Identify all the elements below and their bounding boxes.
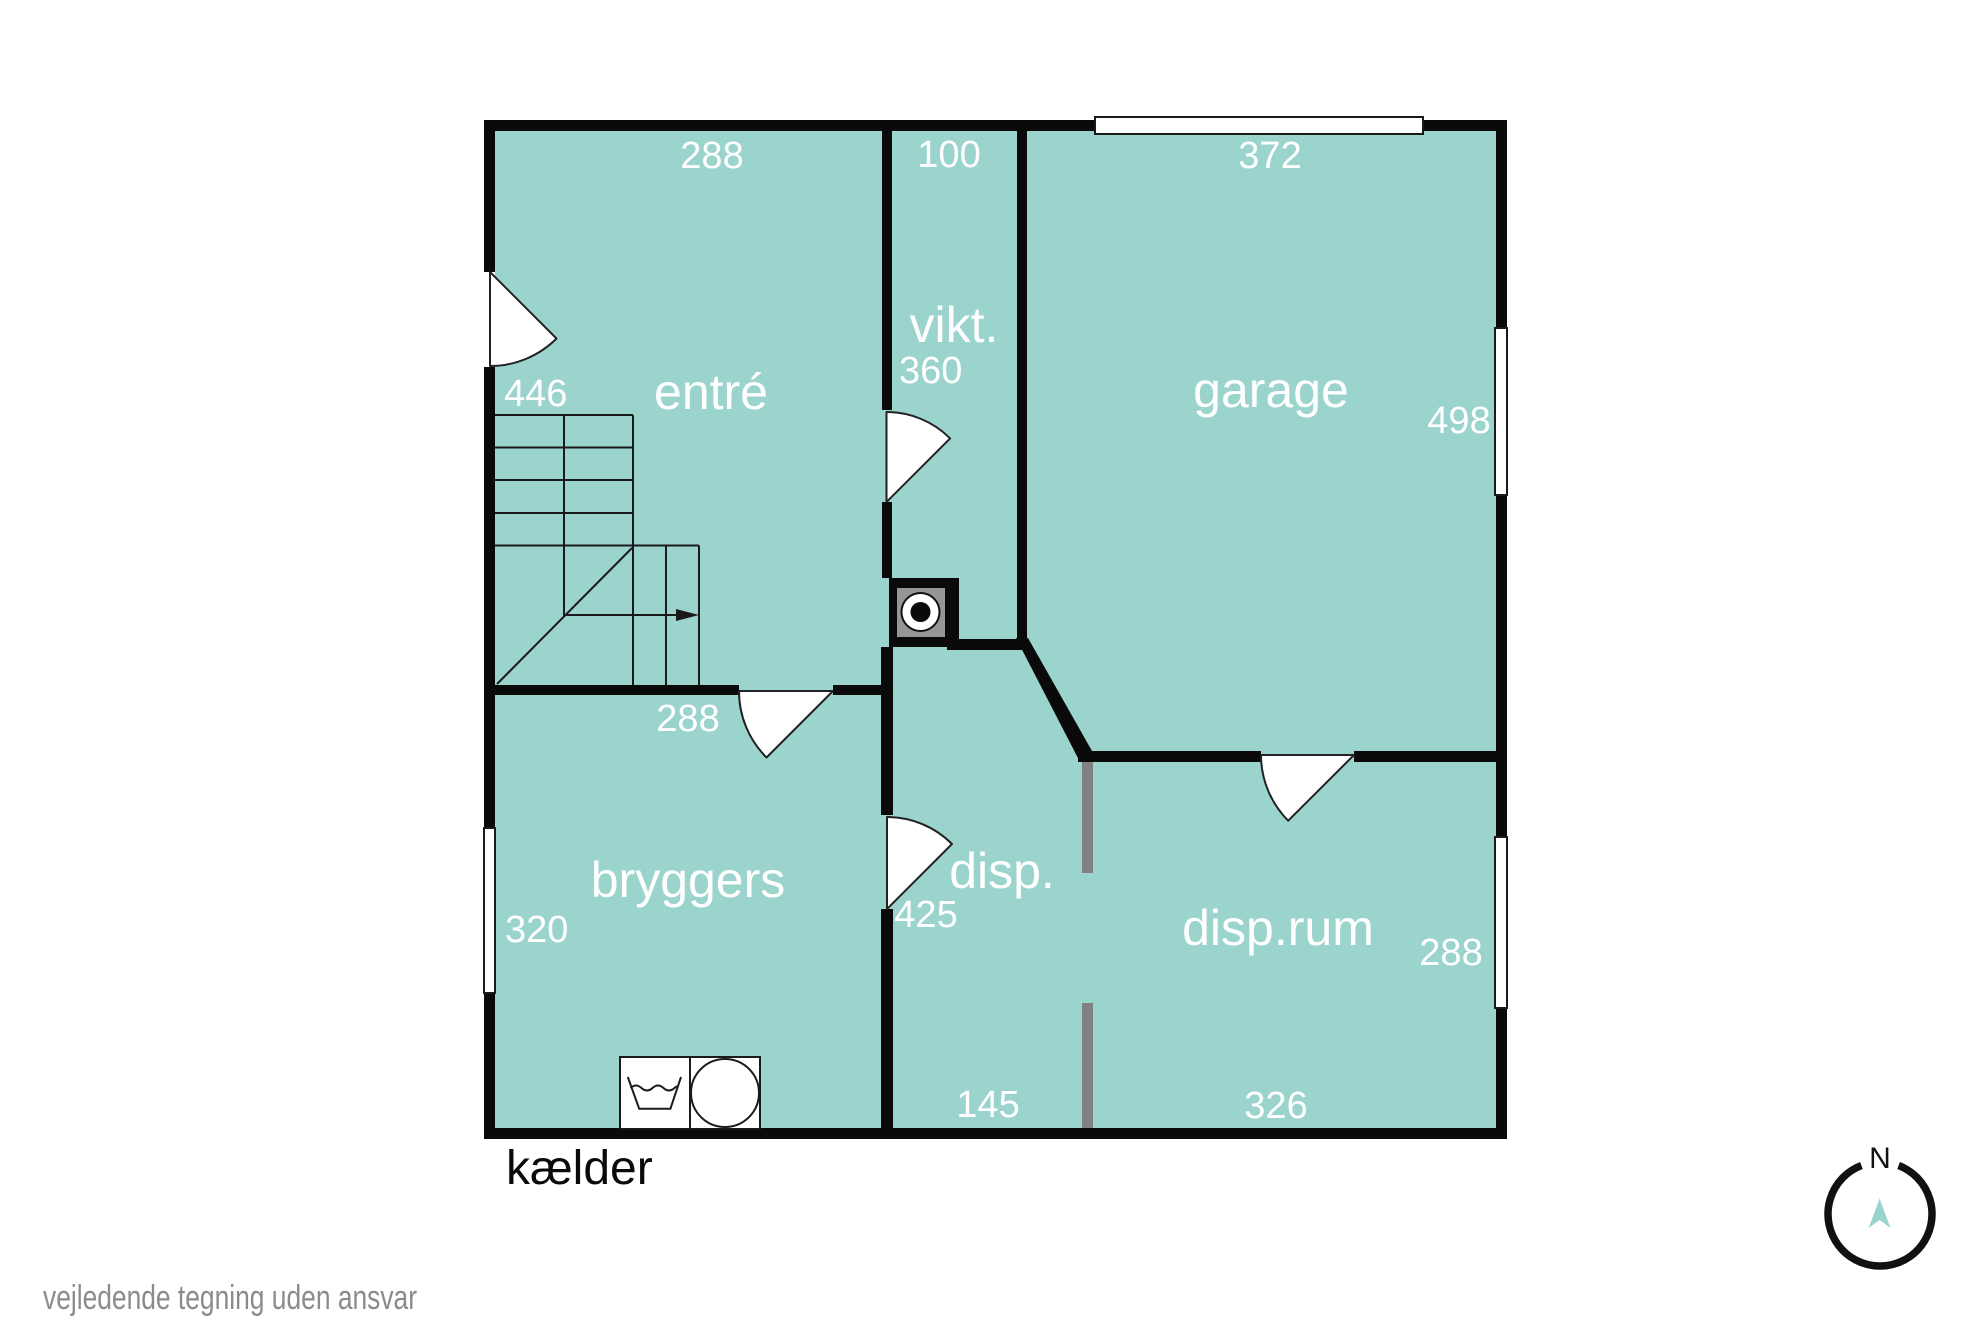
svg-text:320: 320 — [505, 909, 568, 951]
svg-text:288: 288 — [1419, 932, 1482, 974]
svg-text:288: 288 — [680, 135, 743, 177]
svg-text:disp.: disp. — [949, 843, 1055, 899]
svg-text:bryggers: bryggers — [591, 852, 786, 908]
svg-text:100: 100 — [917, 134, 980, 176]
svg-text:498: 498 — [1427, 400, 1490, 442]
svg-text:disp.rum: disp.rum — [1182, 900, 1374, 956]
svg-text:vikt.: vikt. — [910, 297, 999, 353]
svg-text:288: 288 — [656, 698, 719, 740]
svg-text:446: 446 — [504, 373, 567, 415]
svg-text:kælder: kælder — [506, 1142, 653, 1195]
svg-text:145: 145 — [956, 1084, 1019, 1126]
svg-text:372: 372 — [1238, 135, 1301, 177]
svg-text:garage: garage — [1193, 362, 1349, 418]
svg-text:vejledende tegning uden ansvar: vejledende tegning uden ansvar — [43, 1279, 417, 1317]
svg-text:entré: entré — [654, 364, 768, 420]
svg-text:425: 425 — [894, 894, 957, 936]
svg-text:326: 326 — [1244, 1085, 1307, 1127]
svg-text:N: N — [1869, 1142, 1891, 1175]
svg-text:360: 360 — [899, 350, 962, 392]
